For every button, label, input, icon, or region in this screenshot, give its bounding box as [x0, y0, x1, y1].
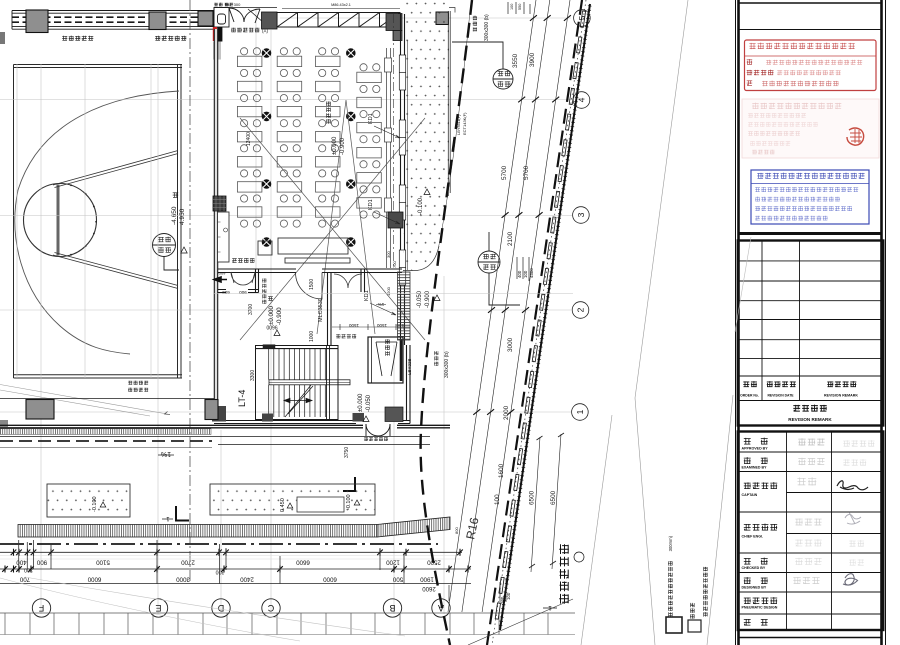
svg-text:-0.900: -0.900: [425, 290, 431, 308]
svg-text:3000: 3000: [176, 576, 190, 583]
svg-text:C: C: [267, 603, 274, 613]
svg-text:3000: 3000: [507, 337, 514, 352]
svg-text:6500: 6500: [550, 490, 557, 505]
svg-text:400: 400: [517, 270, 522, 278]
svg-text:3750: 3750: [344, 447, 350, 458]
svg-text:ECT143K(F): ECT143K(F): [462, 112, 467, 135]
svg-text:2600: 2600: [422, 585, 436, 591]
svg-text:1900: 1900: [420, 576, 434, 583]
svg-text:APPROVED BY: APPROVED BY: [742, 447, 769, 451]
svg-text:-0.100: -0.100: [418, 197, 424, 215]
svg-text:D: D: [217, 603, 224, 613]
svg-text:5: 5: [577, 15, 587, 20]
svg-text:1500: 1500: [309, 279, 315, 290]
svg-text:300: 300: [234, 2, 241, 7]
svg-text:-0.050: -0.050: [366, 394, 372, 412]
svg-text:6600: 6600: [296, 559, 310, 566]
svg-text:1600: 1600: [498, 463, 505, 478]
svg-text:REVISION REMARK: REVISION REMARK: [824, 394, 858, 398]
svg-text:2400: 2400: [240, 576, 254, 583]
svg-text:2700: 2700: [181, 559, 195, 566]
svg-text:3700: 3700: [248, 304, 254, 315]
svg-text:300mm): 300mm): [668, 535, 673, 551]
svg-text:E: E: [155, 603, 161, 613]
svg-text:-0.100: -0.100: [346, 494, 352, 510]
svg-text:-0.100: -0.100: [92, 496, 98, 512]
svg-text:4500: 4500: [529, 268, 534, 278]
svg-text:CAPTAIN: CAPTAIN: [742, 493, 758, 497]
svg-text:100: 100: [510, 4, 514, 10]
svg-text:3300: 3300: [250, 370, 256, 381]
svg-text:REVISION DATE: REVISION DATE: [767, 394, 794, 398]
svg-text:5700: 5700: [523, 165, 530, 180]
svg-text:300x300 (b): 300x300 (b): [484, 14, 490, 41]
svg-text:0.450: 0.450: [280, 498, 286, 512]
svg-text:CHIEF ENGI.: CHIEF ENGI.: [742, 535, 764, 539]
svg-text:300: 300: [386, 251, 391, 258]
svg-text:1500: 1500: [348, 323, 359, 328]
svg-text:REVISION REMARK: REVISION REMARK: [788, 417, 832, 422]
svg-text:-0.050: -0.050: [417, 290, 423, 308]
svg-text:±0.000: ±0.000: [358, 393, 364, 412]
svg-text:100: 100: [506, 592, 511, 600]
svg-text:LT-4: LT-4: [237, 390, 247, 407]
svg-text:CHECKED BY: CHECKED BY: [742, 566, 766, 570]
svg-text:100: 100: [523, 270, 528, 278]
svg-text:1000: 1000: [309, 331, 315, 342]
svg-text:1200: 1200: [386, 559, 400, 566]
svg-text:4.950: 4.950: [179, 208, 186, 225]
svg-text:900: 900: [36, 559, 47, 566]
svg-text:F: F: [38, 603, 44, 613]
svg-text:6000: 6000: [87, 576, 101, 583]
svg-text:1%: 1%: [161, 450, 171, 457]
svg-text:6000: 6000: [323, 576, 337, 583]
svg-text:±0.000: ±0.000: [332, 136, 338, 155]
svg-text:900: 900: [239, 290, 247, 295]
svg-text:-0.900: -0.900: [340, 137, 346, 155]
svg-text:1500: 1500: [376, 323, 387, 328]
svg-text:600: 600: [218, 271, 225, 276]
svg-text:400: 400: [16, 559, 27, 566]
svg-text:800: 800: [454, 527, 459, 534]
svg-text:ORDER No.: ORDER No.: [740, 394, 759, 398]
svg-text:-0.900: -0.900: [276, 307, 283, 325]
svg-text:12400: 12400: [246, 132, 252, 146]
svg-text:EXAMINED BY: EXAMINED BY: [742, 466, 768, 470]
svg-text:2000: 2000: [503, 405, 510, 420]
svg-text:5100: 5100: [96, 559, 110, 566]
svg-text:5700: 5700: [501, 165, 508, 180]
svg-text:DESIGNED BY: DESIGNED BY: [742, 586, 767, 590]
svg-text:100: 100: [494, 494, 501, 505]
svg-text:PNEUMATIC DESIGN: PNEUMATIC DESIGN: [742, 606, 778, 610]
svg-text:300x300 (b): 300x300 (b): [444, 351, 450, 378]
svg-text:M86.43x2.1: M86.43x2.1: [331, 3, 351, 7]
svg-text:B: B: [389, 603, 395, 613]
svg-text:9600: 9600: [266, 324, 277, 330]
svg-text:2100: 2100: [507, 231, 514, 246]
svg-text:MLC3530: MLC3530: [318, 298, 324, 322]
svg-text:700: 700: [392, 261, 397, 268]
svg-text:6500: 6500: [529, 490, 536, 505]
svg-text:±0.000: ±0.000: [268, 306, 275, 325]
svg-text:3550: 3550: [512, 53, 519, 68]
svg-text:4: 4: [577, 97, 587, 102]
svg-text:3900: 3900: [529, 52, 536, 67]
svg-text:500: 500: [392, 576, 403, 583]
svg-text:550: 550: [518, 4, 522, 10]
svg-text:2: 2: [575, 307, 585, 312]
svg-text:200: 200: [500, 596, 505, 604]
svg-text:700: 700: [19, 576, 30, 583]
svg-text:3: 3: [576, 212, 586, 217]
svg-text:1200: 1200: [386, 286, 391, 296]
svg-text:1: 1: [575, 409, 585, 414]
